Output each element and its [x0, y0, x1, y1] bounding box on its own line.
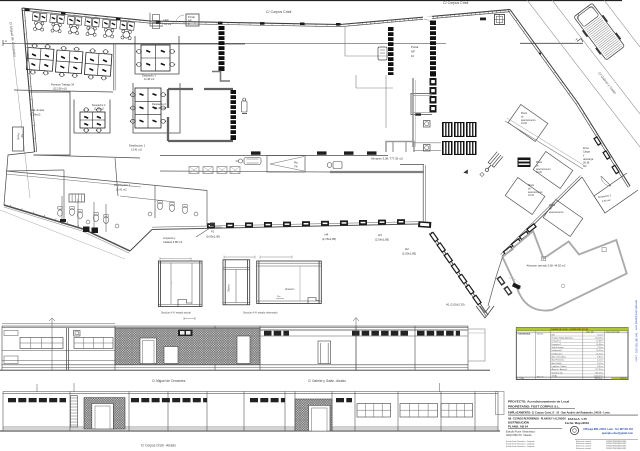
svg-text:Puestos Trabajo 34: Puestos Trabajo 34 — [51, 83, 75, 87]
svg-text:11,48 m2: 11,48 m2 — [144, 78, 155, 81]
svg-text:ESCALA: 1:75: ESCALA: 1:75 — [568, 417, 587, 421]
svg-text:m2: m2 — [583, 165, 587, 168]
svg-text:(112,08 m2): (112,08 m2) — [53, 87, 67, 91]
svg-text:descarga: descarga — [583, 158, 594, 161]
svg-text:Despacho 1: Despacho 1 — [552, 341, 562, 343]
svg-text:965,29 m²: 965,29 m² — [595, 371, 603, 374]
svg-text:Estudio Fuste Urbanística - Co: Estudio Fuste Urbanística - Colegiado — [506, 442, 534, 445]
svg-text:Hall: Hall — [164, 18, 169, 22]
svg-text:C/Pasaje INB, 24010, León - Te: C/Pasaje INB, 24010, León - Tel. 987 001… — [583, 428, 633, 431]
svg-text:9238102TN8193N0001WX: 9238102TN8193N0001WX — [606, 448, 627, 450]
svg-text:Almacén - Almacén: Almacén - Almacén — [552, 368, 567, 371]
svg-text:PROPIETARIO: FOST CORPUS S.L.: PROPIETARIO: FOST CORPUS S.L. — [508, 404, 560, 408]
svg-text:Carga: Carga — [583, 151, 590, 154]
svg-text:NP: NP — [411, 50, 415, 54]
svg-text:13,41 m²: 13,41 m² — [596, 349, 603, 352]
svg-text:11,48 m²: 11,48 m² — [596, 340, 603, 343]
svg-text:7,51 m²: 7,51 m² — [597, 333, 603, 336]
svg-text:H3: H3 — [378, 233, 382, 237]
svg-text:Aseo Femenino: Aseo Femenino — [552, 359, 565, 362]
svg-text:ejemplo.cleo@gmail.com - Telf.: ejemplo.cleo@gmail.com - Telf. 987 001 0… — [635, 300, 639, 362]
svg-text:P1: P1 — [211, 230, 215, 234]
svg-text:C/ Corpus Cristi: C/ Corpus Cristi — [266, 10, 292, 14]
svg-text:NP: NP — [188, 19, 192, 23]
svg-text:(2,15x1,85): (2,15x1,85) — [322, 237, 336, 241]
svg-text:11,41 m²: 11,41 m² — [596, 352, 603, 355]
svg-text:H1 (2,00x2,30): H1 (2,00x2,30) — [446, 303, 465, 307]
svg-text:Limpieza y: Limpieza y — [163, 236, 176, 240]
svg-text:PLANTA BAJA: PLANTA BAJA — [518, 332, 531, 335]
svg-text:Distribución 1: Distribución 1 — [552, 349, 563, 352]
svg-text:Caldera 2,85 m2: Caldera 2,85 m2 — [163, 240, 183, 244]
svg-text:Superficie útil: Superficie útil — [552, 371, 563, 374]
svg-text:Despacho 2: Despacho 2 — [152, 102, 166, 106]
svg-text:A: A — [5, 39, 7, 43]
svg-text:Almacen cerrado 3,08: 44,92 m: Almacen cerrado 3,08: 44,92 m2 — [527, 264, 566, 268]
svg-text:A': A' — [576, 38, 579, 42]
svg-text:Estudio Fuste Urbanística: Estudio Fuste Urbanística — [506, 430, 535, 433]
svg-text:11,48 m²: 11,48 m² — [596, 343, 603, 346]
svg-text:Portal: Portal — [188, 15, 195, 19]
svg-text:(7,59m2): (7,59m2) — [30, 113, 41, 117]
svg-text:Portal: Portal — [411, 45, 419, 49]
svg-text:ARQUITECTO: Yolanda: ARQUITECTO: Yolanda — [506, 434, 532, 437]
svg-text:C/ Corpus Cristi - Alzado: C/ Corpus Cristi - Alzado — [141, 444, 176, 448]
svg-text:11,41 m2: 11,41 m2 — [116, 187, 127, 191]
svg-text:965,29 m²: 965,29 m² — [595, 377, 603, 380]
svg-text:H2: H2 — [405, 247, 409, 251]
svg-text:Estudio Fuste Urbanística - Co: Estudio Fuste Urbanística - Colegiado — [506, 445, 534, 448]
svg-text:Oficinas: Oficinas — [537, 333, 544, 335]
svg-text:Puestos Trabajo (abiertos): Puestos Trabajo (abiertos) — [552, 337, 573, 340]
svg-text:C/ Corpus Cristi: C/ Corpus Cristi — [443, 1, 469, 5]
svg-text:Sala de Juntas: Sala de Juntas — [552, 346, 564, 349]
svg-text:Oficina: Oficina — [228, 284, 231, 292]
svg-text:10,00: 10,00 — [528, 194, 535, 197]
svg-text:Almacen 3,08: 777,35 m2: Almacen 3,08: 777,35 m2 — [371, 156, 403, 160]
svg-text:Sección A-A' estado actual: Sección A-A' estado actual — [161, 312, 191, 315]
svg-text:Estudio Fuste Urbanística - Co: Estudio Fuste Urbanística - Colegiado — [506, 440, 534, 443]
svg-text:Almacén: Almacén — [285, 288, 295, 291]
svg-text:(0,90x2,00): (0,90x2,00) — [206, 235, 220, 239]
svg-text:Referencia catastral: Referencia catastral — [576, 447, 592, 450]
svg-text:Portal: Portal — [17, 133, 21, 140]
svg-text:aparcamiento: aparcamiento — [549, 211, 564, 214]
svg-text:10: 10 — [411, 54, 415, 58]
svg-text:Puerta: Puerta — [214, 225, 222, 229]
svg-text:Sección A-A' estado reformado: Sección A-A' estado reformado — [243, 312, 278, 315]
svg-text:3,85 m²: 3,85 m² — [597, 356, 603, 359]
svg-text:C/ Miguel de Cervantes: C/ Miguel de Cervantes — [152, 379, 186, 383]
svg-text:2,07 m²: 2,07 m² — [597, 362, 603, 365]
svg-text:7,59 m²: 7,59 m² — [597, 346, 603, 349]
svg-text:PLANO: AB 04: PLANO: AB 04 — [508, 425, 528, 429]
svg-text:Zona: Zona — [583, 147, 589, 150]
svg-text:Limpieza - Caldera: Limpieza - Caldera — [552, 366, 567, 368]
svg-text:Aseo Pasillo: Aseo Pasillo — [552, 362, 562, 365]
svg-text:10,00: 10,00 — [521, 122, 528, 125]
svg-text:Despacho 1: Despacho 1 — [142, 74, 156, 78]
svg-text:Distribución 1: Distribución 1 — [114, 183, 131, 187]
svg-text:H4: H4 — [325, 233, 329, 237]
svg-text:36,38: 36,38 — [583, 161, 590, 164]
svg-text:777,35 m²: 777,35 m² — [595, 368, 603, 371]
svg-text:10,00: 10,00 — [536, 171, 543, 174]
svg-text:P. TOTAL: P. TOTAL — [517, 377, 524, 380]
svg-text:(2,06x1,85): (2,06x1,85) — [375, 238, 389, 242]
svg-text:Sup. Construida: Sup. Construida — [606, 331, 619, 334]
svg-text:ejemplo.cleo@gmail.com: ejemplo.cleo@gmail.com — [602, 431, 634, 435]
svg-text:Distribución 1: Distribución 1 — [129, 144, 146, 148]
svg-text:Pte.: Pte. — [294, 162, 299, 165]
svg-text:Despacho 2: Despacho 2 — [552, 344, 562, 346]
svg-text:13,41 m2: 13,41 m2 — [131, 148, 142, 152]
svg-text:7,51 m2: 7,51 m2 — [162, 22, 172, 26]
svg-text:1.022,41: 1.022,41 — [620, 378, 626, 380]
svg-text:(2,00x1,85): (2,00x1,85) — [402, 252, 416, 256]
svg-text:Fecha: Mayo/2019: Fecha: Mayo/2019 — [565, 421, 589, 425]
svg-text:Despacho 2: Despacho 2 — [92, 104, 106, 107]
svg-text:EMPLAZAMIENTO: C/ Corpus Cris: EMPLAZAMIENTO: C/ Corpus Cristi, 8 - 10 … — [508, 411, 611, 415]
svg-text:Distribución 2: Distribución 2 — [552, 352, 563, 355]
svg-text:Sup. Útil: Sup. Útil — [586, 331, 594, 334]
svg-text:2,85 m²: 2,85 m² — [597, 365, 603, 368]
svg-text:4,21 m²: 4,21 m² — [597, 359, 603, 362]
svg-text:112,08 m²: 112,08 m² — [595, 337, 603, 340]
svg-text:NP: NP — [20, 134, 24, 138]
svg-text:C/ Gabriel y Galán -Alzado: C/ Gabriel y Galán -Alzado — [308, 379, 346, 383]
svg-text:PROYECTO: Acondicionamiento d: PROYECTO: Acondicionamiento de Local — [508, 399, 569, 403]
svg-text:Aseo / Vest. Masc.: Aseo / Vest. Masc. — [552, 356, 567, 359]
svg-text:Sala Juntas: Sala Juntas — [30, 108, 45, 112]
svg-text:Pte.: Pte. — [277, 295, 281, 298]
